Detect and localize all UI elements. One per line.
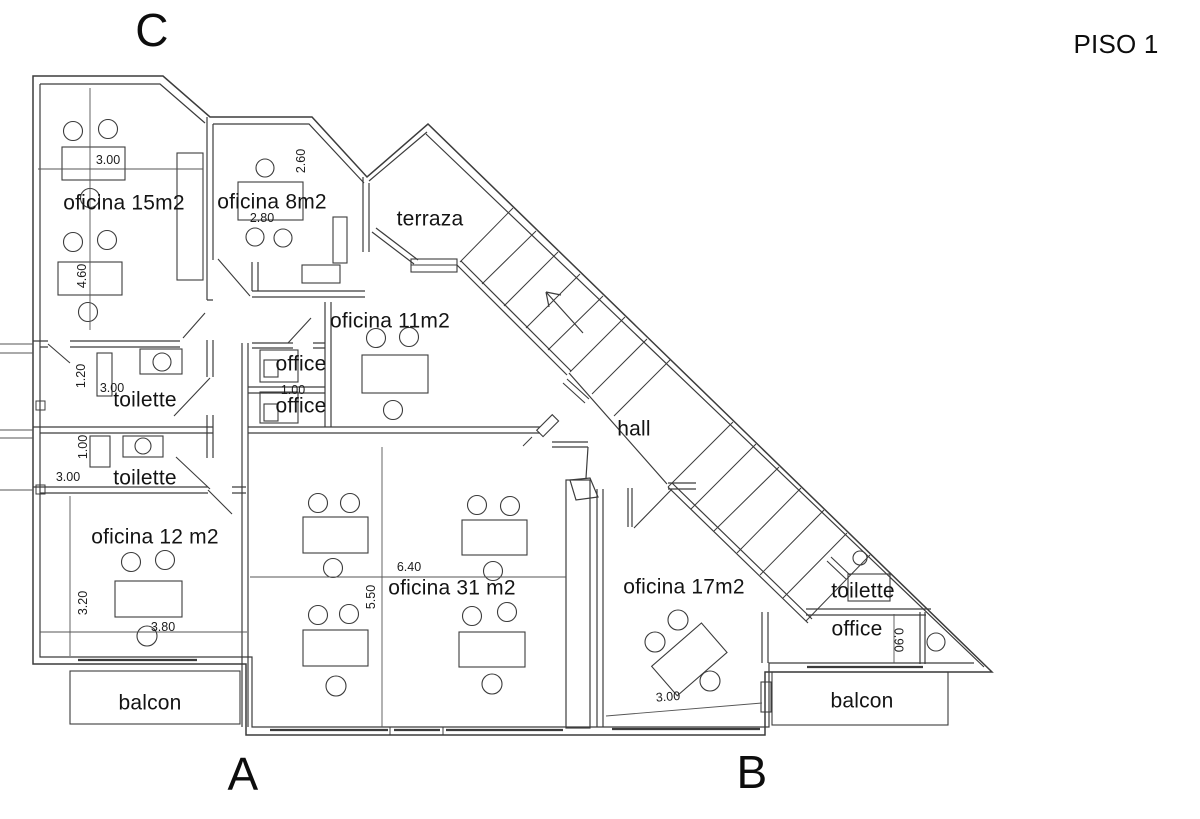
room-label-office-lower: office xyxy=(275,396,326,417)
room-label-oficina-8: oficina 8m2 xyxy=(217,192,327,213)
room-label-hall: hall xyxy=(617,419,651,440)
dim-toilette-lower-width: 3.00 xyxy=(56,471,80,484)
sink-icon xyxy=(853,551,867,565)
entrance-door-icon xyxy=(523,415,559,446)
room-label-oficina-31: oficina 31 m2 xyxy=(388,578,516,599)
desk xyxy=(462,520,527,555)
desk xyxy=(362,355,428,393)
balconies xyxy=(70,671,948,725)
room-label-toilette-lower: toilette xyxy=(113,468,176,489)
room-label-balcon-left: balcon xyxy=(118,693,181,714)
dim-office-height: 1.00 xyxy=(281,384,305,397)
desk xyxy=(115,581,182,617)
room-label-oficina-11: oficina 11m2 xyxy=(330,311,450,332)
room-label-office-upper: office xyxy=(275,354,326,375)
desk xyxy=(652,623,727,696)
floor-plan: PISO 1 C A B oficina 15m2 oficina 8m2 te… xyxy=(0,0,1200,819)
dim-oficina12-width: 3.80 xyxy=(151,621,175,634)
dim-oficina31-width: 6.40 xyxy=(397,561,421,574)
dim-toilette-upper-width: 3.00 xyxy=(100,382,124,395)
dim-oficina8-width: 2.80 xyxy=(250,212,274,225)
dim-toilette-lower-height: 1.00 xyxy=(77,435,90,459)
room-label-oficina-15: oficina 15m2 xyxy=(63,193,184,214)
dim-oficina17-width: 3.00 xyxy=(655,690,680,704)
dim-oficina8-height: 2.60 xyxy=(295,149,308,173)
room-label-oficina-12: oficina 12 m2 xyxy=(91,527,219,548)
room-label-terraza: terraza xyxy=(397,209,464,230)
room-label-toilette-right: toilette xyxy=(831,581,894,602)
dim-oficina31-height: 5.50 xyxy=(365,585,378,609)
desk xyxy=(303,630,368,666)
toilet-icon xyxy=(927,633,945,651)
sink-icon xyxy=(135,438,151,454)
closet xyxy=(177,153,203,280)
desk xyxy=(303,517,368,553)
desk xyxy=(459,632,525,667)
marker-a: A xyxy=(228,751,259,797)
marker-b: B xyxy=(737,749,768,795)
plan-title: PISO 1 xyxy=(1073,31,1158,57)
room-label-balcon-right: balcon xyxy=(830,691,893,712)
room-label-oficina-17: oficina 17m2 xyxy=(623,577,744,598)
stair-direction-arrow-icon xyxy=(546,292,583,333)
marker-c: C xyxy=(135,7,168,53)
dim-office-right-height: 0.90 xyxy=(892,628,905,652)
dim-toilette-upper-height: 1.20 xyxy=(75,364,88,388)
dim-oficina15-height: 4.60 xyxy=(76,264,89,288)
dim-oficina15-width: 3.00 xyxy=(96,154,120,167)
dim-oficina12-height: 3.20 xyxy=(77,591,90,615)
sink-icon xyxy=(153,353,171,371)
room-label-office-right: office xyxy=(831,619,882,640)
